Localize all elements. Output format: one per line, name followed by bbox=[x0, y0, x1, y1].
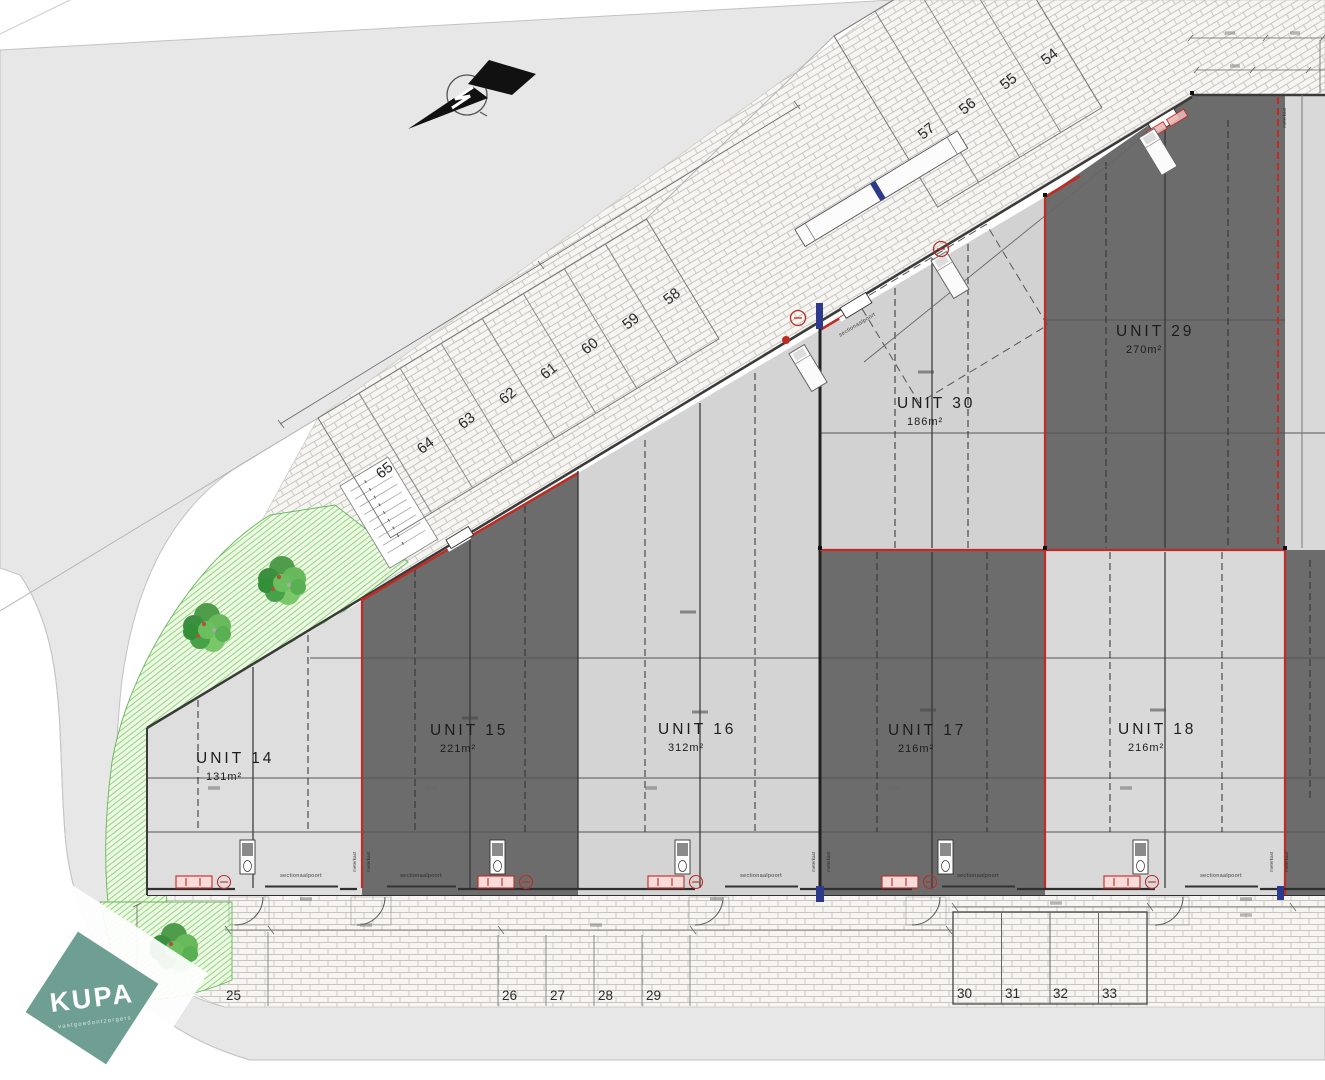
door-label: sectionaalpoort bbox=[1200, 873, 1242, 879]
unit-label: UNIT 15 bbox=[430, 722, 508, 739]
unit-label: UNIT 30 bbox=[897, 395, 975, 412]
unit-label: UNIT 17 bbox=[888, 722, 966, 739]
unit-area: 216m² bbox=[898, 743, 934, 755]
unit-label: UNIT 29 bbox=[1116, 323, 1194, 340]
door-label: sectionaalpoort bbox=[957, 873, 999, 879]
parking-stall-number: 33 bbox=[1102, 986, 1117, 1001]
meter-label: meterkast bbox=[352, 851, 357, 872]
unit-label: UNIT 16 bbox=[658, 721, 736, 738]
unit-right-top-region bbox=[1285, 95, 1325, 550]
unit-area: 270m² bbox=[1126, 344, 1162, 356]
unit-area: 221m² bbox=[440, 743, 476, 755]
parking-stall-number: 29 bbox=[646, 988, 661, 1003]
hydrant-red-dot bbox=[782, 336, 790, 344]
parking-stall-number: 32 bbox=[1053, 986, 1068, 1001]
parking-stall-number: 26 bbox=[502, 988, 517, 1003]
parking-stall-number: 25 bbox=[226, 988, 241, 1003]
parking-stall-number: 31 bbox=[1005, 986, 1020, 1001]
parking-stall-number: 30 bbox=[957, 986, 972, 1001]
unit-area: 186m² bbox=[907, 416, 943, 428]
unit-label: UNIT 18 bbox=[1118, 721, 1196, 738]
meter-label: meterkast bbox=[1282, 107, 1287, 128]
unit-area: 131m² bbox=[206, 771, 242, 783]
parking-stall-number: 27 bbox=[550, 988, 565, 1003]
door-label: sectionaalpoort bbox=[280, 873, 322, 879]
meter-label: meterkast bbox=[811, 851, 816, 872]
site-plan-drawing: 65 64 63 62 61 60 59 58 57 56 55 54 25 2… bbox=[0, 0, 1325, 1080]
unit-area: 216m² bbox=[1128, 742, 1164, 754]
meter-label: meterkast bbox=[826, 851, 831, 872]
unit-label: UNIT 14 bbox=[196, 750, 274, 767]
unit-right-bottom-region bbox=[1285, 550, 1325, 895]
parking-stall-number: 28 bbox=[598, 988, 613, 1003]
door-label: sectionaalpoort bbox=[740, 873, 782, 879]
meter-label: meterkast bbox=[1284, 851, 1289, 872]
door-label: sectionaalpoort bbox=[400, 873, 442, 879]
meter-label: meterkast bbox=[366, 851, 371, 872]
site-plan-sheet: 65 64 63 62 61 60 59 58 57 56 55 54 25 2… bbox=[0, 0, 1325, 1080]
meter-label: meterkast bbox=[1269, 851, 1274, 872]
unit-area: 312m² bbox=[668, 742, 704, 754]
road-corner-line bbox=[0, 0, 70, 34]
